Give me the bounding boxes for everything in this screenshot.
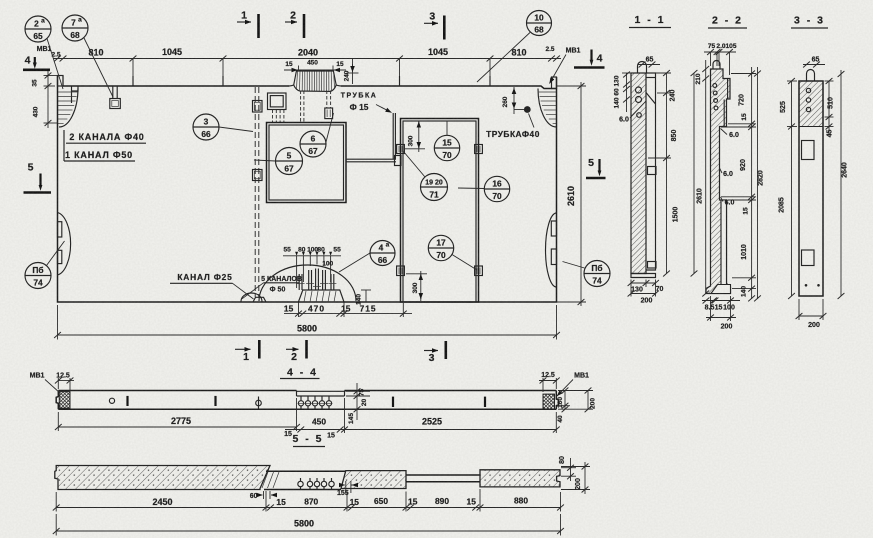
svg-text:15: 15 — [285, 61, 293, 68]
svg-text:70: 70 — [436, 250, 446, 260]
svg-text:68: 68 — [534, 25, 544, 35]
svg-text:715: 715 — [360, 303, 377, 313]
svg-text:1500: 1500 — [673, 207, 680, 223]
svg-text:105: 105 — [725, 43, 736, 50]
svg-text:2450: 2450 — [152, 497, 172, 507]
svg-text:ТРУБКАФ40: ТРУБКАФ40 — [486, 129, 540, 139]
svg-text:5800: 5800 — [297, 324, 317, 334]
svg-text:15: 15 — [350, 497, 360, 507]
svg-text:4 - 4: 4 - 4 — [287, 367, 318, 379]
svg-text:67: 67 — [284, 164, 294, 174]
svg-text:2525: 2525 — [422, 417, 442, 427]
svg-text:210: 210 — [695, 73, 702, 84]
svg-text:4: 4 — [25, 55, 31, 67]
svg-text:6.0: 6.0 — [725, 200, 735, 207]
svg-text:2640: 2640 — [842, 162, 849, 178]
svg-text:5 - 5: 5 - 5 — [292, 433, 323, 445]
svg-text:Ф 15: Ф 15 — [350, 102, 369, 112]
svg-text:200: 200 — [641, 298, 653, 305]
svg-text:15: 15 — [743, 207, 750, 215]
svg-text:6.0: 6.0 — [619, 117, 629, 124]
svg-text:920: 920 — [740, 159, 747, 171]
svg-text:2: 2 — [291, 351, 297, 363]
svg-text:ТРУБКА: ТРУБКА — [341, 93, 378, 100]
svg-text:160: 160 — [557, 397, 564, 408]
svg-text:2 - 2: 2 - 2 — [712, 15, 743, 27]
svg-text:3: 3 — [204, 117, 209, 127]
svg-text:5: 5 — [588, 157, 594, 169]
svg-text:2 КАНАЛА Ф40: 2 КАНАЛА Ф40 — [69, 132, 144, 142]
svg-text:300: 300 — [408, 135, 415, 146]
svg-text:3: 3 — [429, 11, 435, 23]
svg-text:1: 1 — [241, 10, 247, 22]
svg-text:68: 68 — [70, 30, 80, 40]
svg-text:3 - 3: 3 - 3 — [794, 15, 825, 27]
svg-text:5800: 5800 — [294, 519, 314, 529]
svg-text:15: 15 — [284, 431, 292, 438]
svg-text:6.0: 6.0 — [723, 171, 733, 178]
svg-text:20: 20 — [361, 399, 368, 407]
svg-text:300: 300 — [412, 282, 419, 293]
svg-text:5: 5 — [287, 151, 292, 161]
svg-text:15: 15 — [467, 496, 477, 506]
svg-text:15: 15 — [327, 433, 335, 440]
svg-text:40: 40 — [557, 415, 564, 423]
svg-text:67: 67 — [308, 146, 318, 156]
svg-text:2: 2 — [34, 19, 39, 29]
svg-text:2775: 2775 — [171, 416, 191, 426]
svg-text:850: 850 — [671, 130, 678, 142]
svg-text:1: 1 — [243, 351, 249, 363]
svg-text:15: 15 — [741, 113, 748, 121]
svg-text:55: 55 — [284, 247, 292, 254]
svg-text:Пб: Пб — [32, 265, 43, 275]
svg-text:1045: 1045 — [428, 47, 448, 57]
svg-text:55: 55 — [333, 247, 341, 254]
svg-text:а: а — [386, 242, 390, 249]
svg-text:470: 470 — [308, 303, 325, 313]
svg-text:260: 260 — [502, 96, 509, 107]
svg-text:15: 15 — [408, 496, 418, 506]
svg-text:71: 71 — [429, 190, 439, 200]
svg-text:145: 145 — [348, 413, 355, 424]
svg-text:66: 66 — [201, 129, 211, 139]
svg-text:4: 4 — [379, 243, 384, 253]
svg-text:15: 15 — [336, 61, 344, 68]
svg-text:720: 720 — [739, 94, 746, 106]
svg-text:450: 450 — [312, 417, 326, 427]
svg-text:2.5: 2.5 — [545, 46, 554, 53]
svg-text:45: 45 — [827, 130, 834, 138]
svg-text:80: 80 — [298, 247, 306, 254]
svg-text:890: 890 — [435, 496, 449, 506]
svg-text:1 - 1: 1 - 1 — [634, 14, 665, 26]
svg-text:880: 880 — [514, 496, 528, 506]
svg-text:МВ1: МВ1 — [30, 373, 45, 380]
svg-text:525: 525 — [780, 101, 787, 113]
svg-text:66: 66 — [378, 255, 388, 265]
svg-text:2: 2 — [290, 10, 296, 22]
svg-text:2820: 2820 — [758, 170, 765, 186]
svg-text:3: 3 — [429, 352, 435, 364]
svg-text:2610: 2610 — [697, 188, 704, 204]
svg-text:70: 70 — [442, 150, 452, 160]
svg-text:200: 200 — [590, 398, 597, 409]
svg-text:810: 810 — [511, 48, 526, 58]
svg-text:1 КАНАЛ Ф50: 1 КАНАЛ Ф50 — [65, 150, 133, 160]
svg-text:240: 240 — [670, 90, 677, 102]
svg-text:19 20: 19 20 — [425, 180, 443, 187]
svg-text:Пб: Пб — [591, 263, 602, 273]
svg-text:650: 650 — [374, 496, 388, 506]
svg-text:65: 65 — [33, 31, 43, 41]
svg-text:7: 7 — [71, 18, 76, 28]
svg-text:4: 4 — [597, 53, 603, 65]
svg-text:74: 74 — [33, 278, 43, 288]
svg-text:12.5: 12.5 — [541, 372, 555, 379]
svg-text:75: 75 — [359, 389, 366, 397]
svg-text:80: 80 — [317, 247, 325, 254]
svg-text:60: 60 — [614, 88, 621, 96]
svg-text:6.0: 6.0 — [729, 132, 739, 139]
svg-text:80: 80 — [559, 456, 566, 464]
svg-text:130: 130 — [614, 75, 621, 86]
svg-text:1010: 1010 — [741, 244, 748, 260]
svg-text:15: 15 — [442, 138, 452, 148]
svg-text:65: 65 — [646, 57, 654, 64]
svg-text:17: 17 — [436, 238, 446, 248]
svg-text:450: 450 — [307, 60, 318, 67]
svg-text:а: а — [41, 18, 45, 25]
svg-text:2.0: 2.0 — [716, 43, 725, 50]
svg-text:2610: 2610 — [566, 186, 576, 206]
svg-text:870: 870 — [304, 496, 318, 506]
svg-text:МВ1: МВ1 — [574, 373, 589, 380]
svg-text:МВ1: МВ1 — [566, 48, 581, 55]
svg-text:430: 430 — [33, 106, 40, 117]
svg-text:15: 15 — [715, 305, 723, 312]
svg-text:510: 510 — [828, 97, 835, 109]
svg-text:100: 100 — [723, 305, 735, 312]
svg-text:70: 70 — [492, 191, 502, 201]
svg-text:КАНАЛ Ф25: КАНАЛ Ф25 — [177, 272, 232, 282]
svg-text:5: 5 — [28, 162, 34, 174]
svg-text:200: 200 — [575, 478, 582, 490]
svg-text:15: 15 — [341, 304, 351, 314]
svg-text:а: а — [78, 17, 82, 24]
svg-text:5 КАНАЛОВ: 5 КАНАЛОВ — [261, 276, 302, 283]
svg-text:15: 15 — [276, 497, 286, 507]
svg-text:Ф 50: Ф 50 — [270, 287, 286, 294]
svg-text:2085: 2085 — [779, 197, 786, 213]
svg-text:74: 74 — [592, 276, 602, 286]
svg-text:10: 10 — [534, 13, 544, 23]
svg-text:16: 16 — [492, 179, 502, 189]
svg-text:60: 60 — [250, 493, 258, 500]
svg-text:15: 15 — [284, 304, 294, 314]
svg-text:8.5: 8.5 — [705, 305, 715, 312]
svg-text:1045: 1045 — [162, 47, 182, 57]
svg-text:75: 75 — [708, 43, 716, 50]
svg-text:35: 35 — [32, 79, 39, 87]
svg-text:2040: 2040 — [298, 48, 318, 58]
svg-text:200: 200 — [721, 324, 733, 331]
svg-text:6: 6 — [311, 134, 316, 144]
svg-text:140: 140 — [614, 97, 621, 108]
svg-text:100: 100 — [322, 261, 333, 268]
svg-text:240: 240 — [344, 70, 351, 81]
svg-text:140: 140 — [741, 286, 748, 297]
svg-text:200: 200 — [808, 322, 820, 329]
